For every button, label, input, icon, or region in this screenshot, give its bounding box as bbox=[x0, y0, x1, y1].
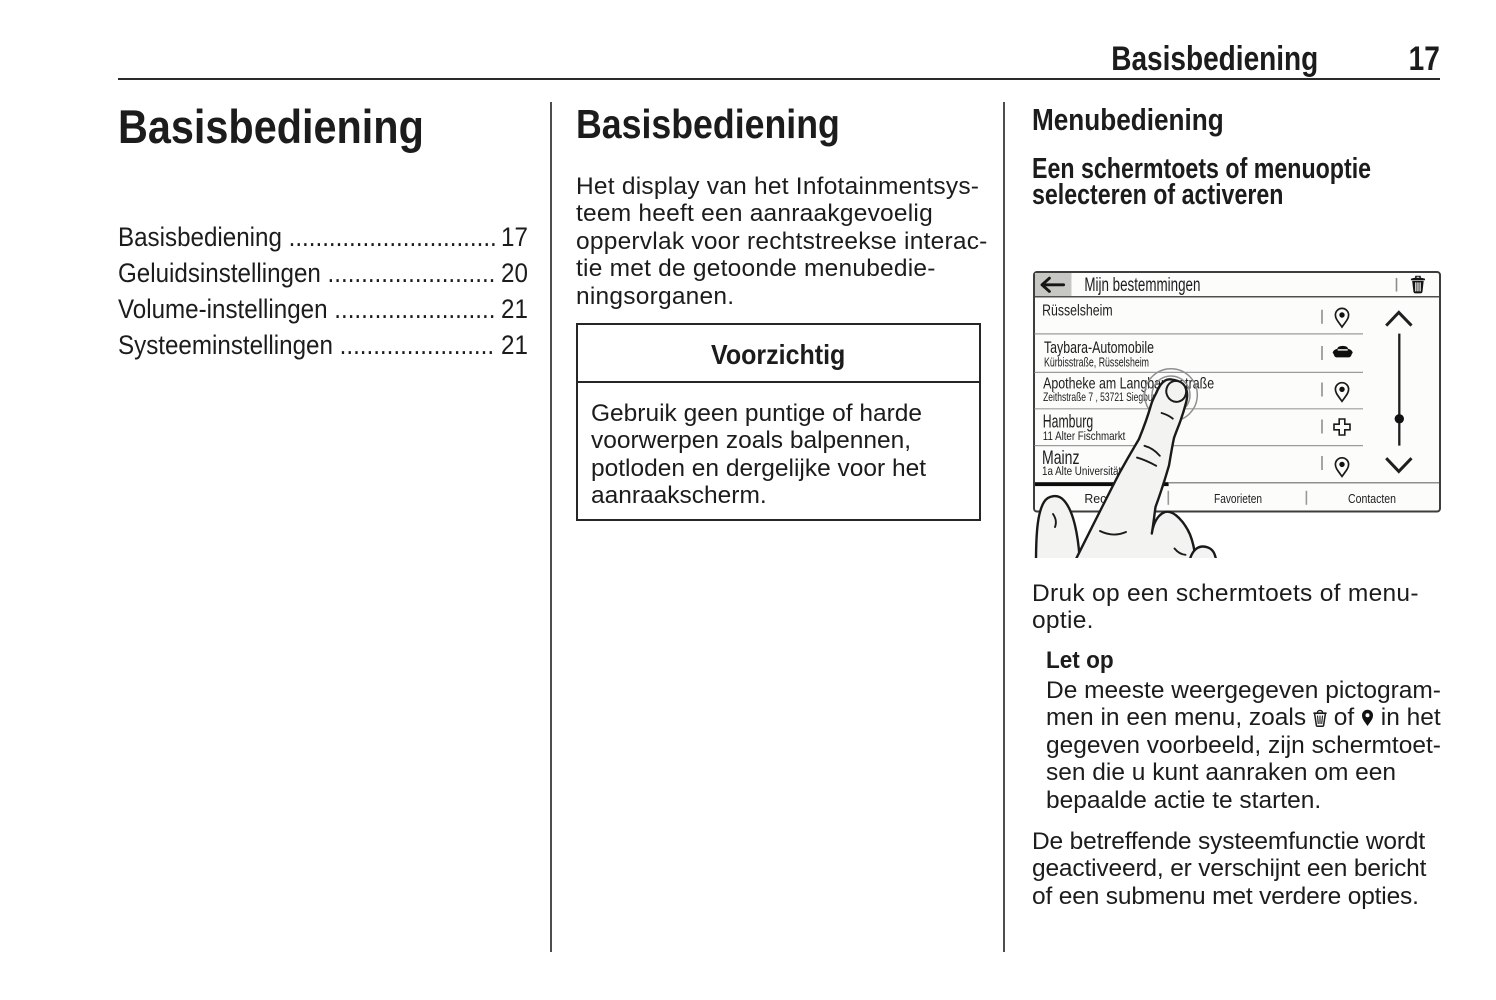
svg-text:Zeithstraße 7 , 53721 Siegburg: Zeithstraße 7 , 53721 Siegburg bbox=[1043, 390, 1160, 404]
svg-text:Favorieten: Favorieten bbox=[1214, 491, 1262, 506]
svg-text:Mijn bestemmingen: Mijn bestemmingen bbox=[1084, 275, 1200, 296]
svg-text:11 Alter Fischmarkt: 11 Alter Fischmarkt bbox=[1043, 429, 1126, 443]
svg-text:Rüsselsheim: Rüsselsheim bbox=[1042, 303, 1113, 320]
svg-text:Contacten: Contacten bbox=[1348, 491, 1396, 506]
svg-text:Taybara-Automobile: Taybara-Automobile bbox=[1044, 339, 1154, 357]
svg-text:Kürbisstraße, Rüsselsheim: Kürbisstraße, Rüsselsheim bbox=[1044, 356, 1149, 370]
